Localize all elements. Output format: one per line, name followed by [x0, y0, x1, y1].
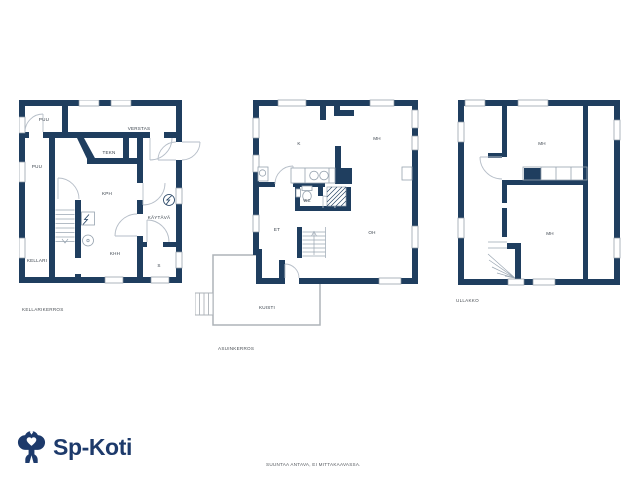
sheet-notes: KELLARIKERROS ASUINKERROS ULLAKKO SUUNTA… — [0, 0, 640, 480]
floor-title-kellarikerros: KELLARIKERROS — [22, 307, 64, 312]
floor-title-asuinkerros: ASUINKERROS — [218, 346, 254, 351]
floor-title-ullakko: ULLAKKO — [456, 298, 479, 303]
disclaimer-text: SUUNTAA ANTAVA, EI MITTAKAAVASSA. — [266, 462, 361, 467]
logo-text: Sp-Koti — [53, 434, 132, 461]
floorplan-sheet: PUU VERSTAS TEKN PUU KPH KÄYTÄVÄ KHH KEL… — [0, 0, 640, 480]
sp-koti-tree-icon — [16, 429, 47, 465]
sp-koti-logo: Sp-Koti — [16, 429, 132, 465]
